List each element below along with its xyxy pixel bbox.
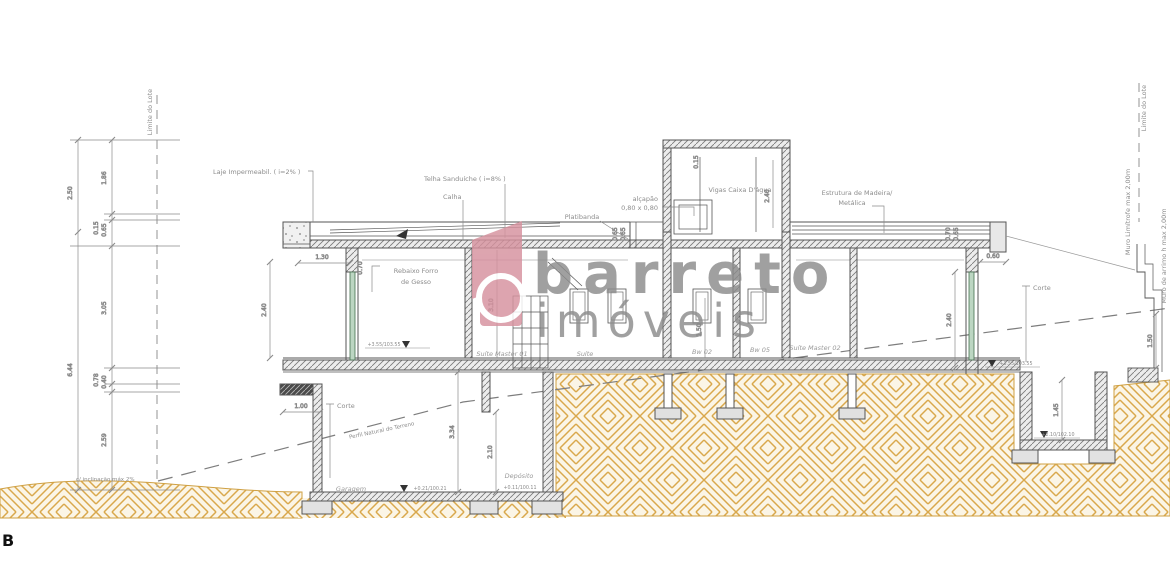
room-bw02: Bw 02 bbox=[692, 348, 712, 356]
dim-2-59: 2.59 bbox=[101, 433, 108, 447]
dim-3-34: 3.34 bbox=[449, 425, 456, 439]
level-garage: +0.21/100.21 bbox=[413, 486, 446, 492]
architectural-section-page: 2.50 6.44 1.86 0.15 0.65 3.05 0.78 0.40 … bbox=[0, 0, 1170, 566]
main-floor-slab bbox=[283, 360, 1020, 370]
dim-1-00: 1.00 bbox=[294, 403, 308, 410]
label-rebaixo-1: Rebaixo Forro bbox=[394, 267, 438, 275]
room-suite-master-01: Suíte Master 01 bbox=[476, 350, 527, 358]
label-inclinacao: c/ inclinação máx 2% bbox=[76, 476, 135, 483]
room-suite: Suíte bbox=[577, 350, 594, 358]
room-deposito: Depósito bbox=[505, 472, 534, 480]
room-garagem: Garagem bbox=[336, 485, 366, 493]
section-drawing: 2.50 6.44 1.86 0.15 0.65 3.05 0.78 0.40 … bbox=[0, 0, 1170, 566]
label-estrutura-2: Metálica bbox=[838, 199, 865, 207]
ground-left-mound bbox=[0, 481, 302, 518]
dim-0-40: 0.40 bbox=[101, 375, 108, 389]
level-pit: +2.10/102.10 bbox=[1041, 432, 1074, 438]
watermark-sub-text: imóveis bbox=[536, 294, 763, 348]
dim-1-30: 1.30 bbox=[315, 254, 329, 261]
label-corte-left: Corte bbox=[337, 402, 355, 410]
label-laje: Laje Impermeabil. ( i=2% ) bbox=[213, 168, 300, 176]
dim-0-15: 0.15 bbox=[93, 221, 100, 235]
garage-floor-slab bbox=[310, 492, 563, 501]
left-dim-stack: 2.50 6.44 1.86 0.15 0.65 3.05 0.78 0.40 … bbox=[67, 137, 180, 493]
ground bbox=[0, 374, 1170, 518]
label-muro-arrimo: Muro de arrimo h max 2,00m bbox=[1160, 208, 1168, 303]
label-alcapao-2: 0,80 x 0,80 bbox=[621, 204, 658, 212]
dim-1-50: 1.50 bbox=[1147, 334, 1154, 348]
label-vigas: Vigas Caixa D'água bbox=[709, 186, 772, 194]
dim-6-44: 6.44 bbox=[67, 363, 74, 377]
label-limite-lote-left: Limite do Lote bbox=[146, 89, 154, 135]
level-suites-left: +3.55/103.55 bbox=[367, 342, 400, 348]
dim-2-40-left: 2.40 bbox=[261, 303, 268, 317]
garage-level bbox=[280, 372, 563, 514]
label-muro-limitrofe: Muro Limítrofe max 2,00m bbox=[1124, 169, 1132, 255]
sheet-corner-label: B bbox=[2, 531, 14, 550]
dim-0-15-tower: 0.15 bbox=[693, 155, 700, 169]
label-telha: Telha Sanduíche ( i=8% ) bbox=[423, 175, 506, 183]
dim-0-70-b: 0.70 bbox=[357, 261, 364, 275]
label-perfil: Perfil Natural do Terreno bbox=[349, 421, 416, 441]
dim-0-70-a: 0.70 bbox=[945, 227, 952, 241]
right-exterior-wall bbox=[966, 248, 978, 374]
dim-2-50: 2.50 bbox=[67, 186, 74, 200]
dim-1-45: 1.45 bbox=[1053, 403, 1060, 417]
room-suite-master-02: Suíte Master 02 bbox=[789, 344, 840, 352]
level-suites-right: +3.55/103.55 bbox=[999, 361, 1032, 367]
right-glazing bbox=[969, 272, 974, 360]
dim-0-78: 0.78 bbox=[93, 373, 100, 387]
left-glazing bbox=[350, 272, 355, 360]
right-roof-end-beam bbox=[990, 222, 1006, 252]
label-limite-lote-right: Limite do Lote bbox=[1140, 85, 1148, 131]
dim-0-60: 0.60 bbox=[986, 253, 1000, 260]
sunken-pit bbox=[1012, 372, 1115, 463]
dim-1-86: 1.86 bbox=[101, 171, 108, 185]
label-rebaixo-2: de Gesso bbox=[401, 278, 431, 286]
dim-2-10: 2.10 bbox=[487, 445, 494, 459]
dim-3-05: 3.05 bbox=[101, 301, 108, 315]
label-calha: Calha bbox=[443, 193, 461, 201]
dim-2-40-right: 2.40 bbox=[946, 313, 953, 327]
label-platibanda: Platibanda bbox=[565, 213, 599, 221]
dim-0-65-c: 0.65 bbox=[953, 227, 960, 241]
label-estrutura-1: Estrutura de Madeira/ bbox=[822, 189, 894, 197]
retaining-wall bbox=[1006, 236, 1162, 382]
dim-0-65: 0.65 bbox=[101, 223, 108, 237]
level-deposito: +0.11/100.11 bbox=[503, 485, 536, 491]
label-alcapao-1: alçapão bbox=[633, 195, 658, 203]
label-corte-right: Corte bbox=[1033, 284, 1051, 292]
dim-0-65-b: 0.65 bbox=[620, 227, 627, 241]
